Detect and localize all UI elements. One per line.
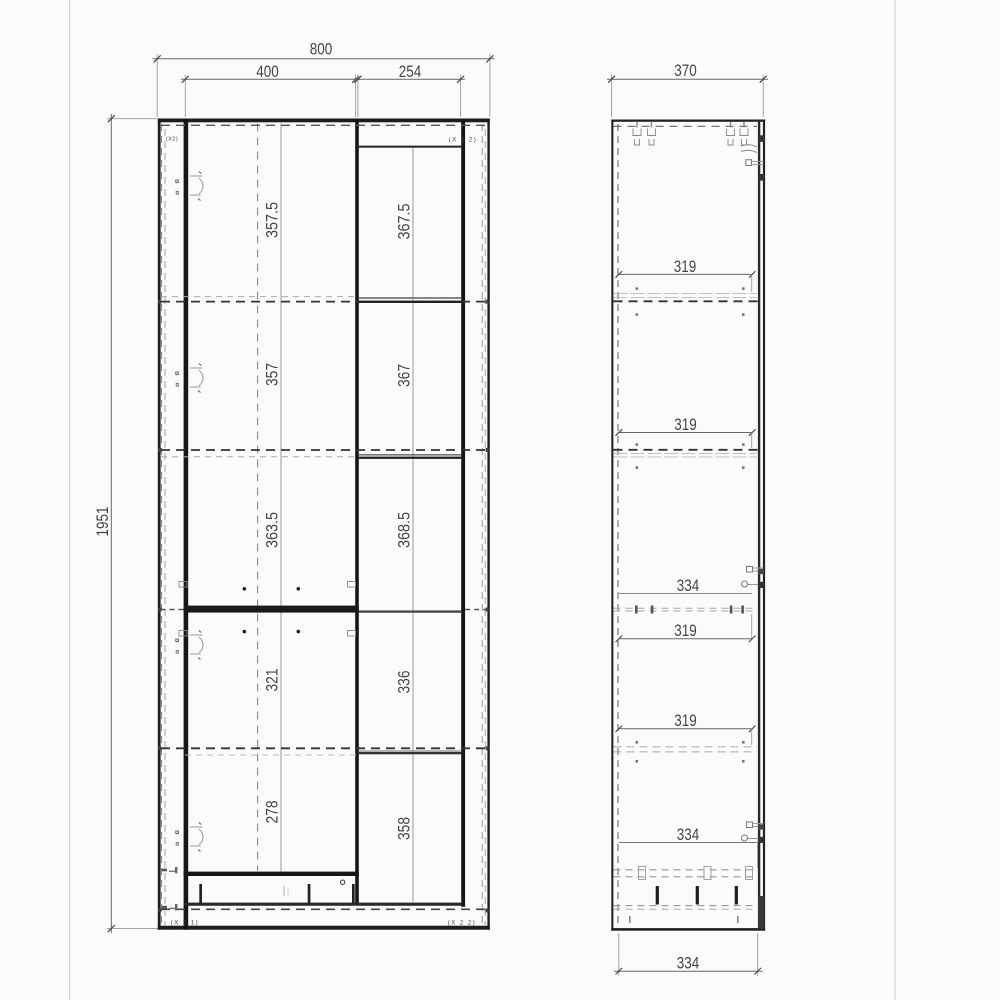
- svg-text:1951: 1951: [93, 507, 112, 537]
- svg-text:367.5: 367.5: [395, 204, 414, 240]
- svg-text:(X 2 2): (X 2 2): [448, 921, 477, 927]
- svg-text:367: 367: [395, 364, 414, 387]
- svg-text:357.5: 357.5: [263, 202, 282, 238]
- svg-text:334: 334: [677, 954, 700, 973]
- svg-text:319: 319: [674, 621, 697, 640]
- svg-text:336: 336: [395, 671, 414, 694]
- svg-text:319: 319: [674, 257, 697, 276]
- svg-text:368.5: 368.5: [395, 512, 414, 548]
- svg-text:254: 254: [399, 62, 422, 81]
- svg-text:319: 319: [674, 711, 697, 730]
- svg-text:800: 800: [310, 39, 333, 58]
- svg-text:358: 358: [395, 817, 414, 840]
- svg-text:334: 334: [677, 576, 700, 595]
- svg-text:(X2): (X2): [166, 137, 178, 143]
- svg-text:334: 334: [677, 825, 700, 844]
- svg-text:370: 370: [674, 61, 697, 80]
- svg-text:357: 357: [263, 363, 282, 386]
- svg-text:278: 278: [263, 801, 282, 824]
- svg-text:363.5: 363.5: [263, 512, 282, 548]
- svg-text:319: 319: [674, 415, 697, 434]
- svg-text:400: 400: [256, 62, 279, 81]
- svg-text:(X 2 1): (X 2 1): [171, 921, 200, 927]
- svg-text:321: 321: [263, 669, 282, 692]
- svg-text:(X 2 2): (X 2 2): [449, 138, 478, 144]
